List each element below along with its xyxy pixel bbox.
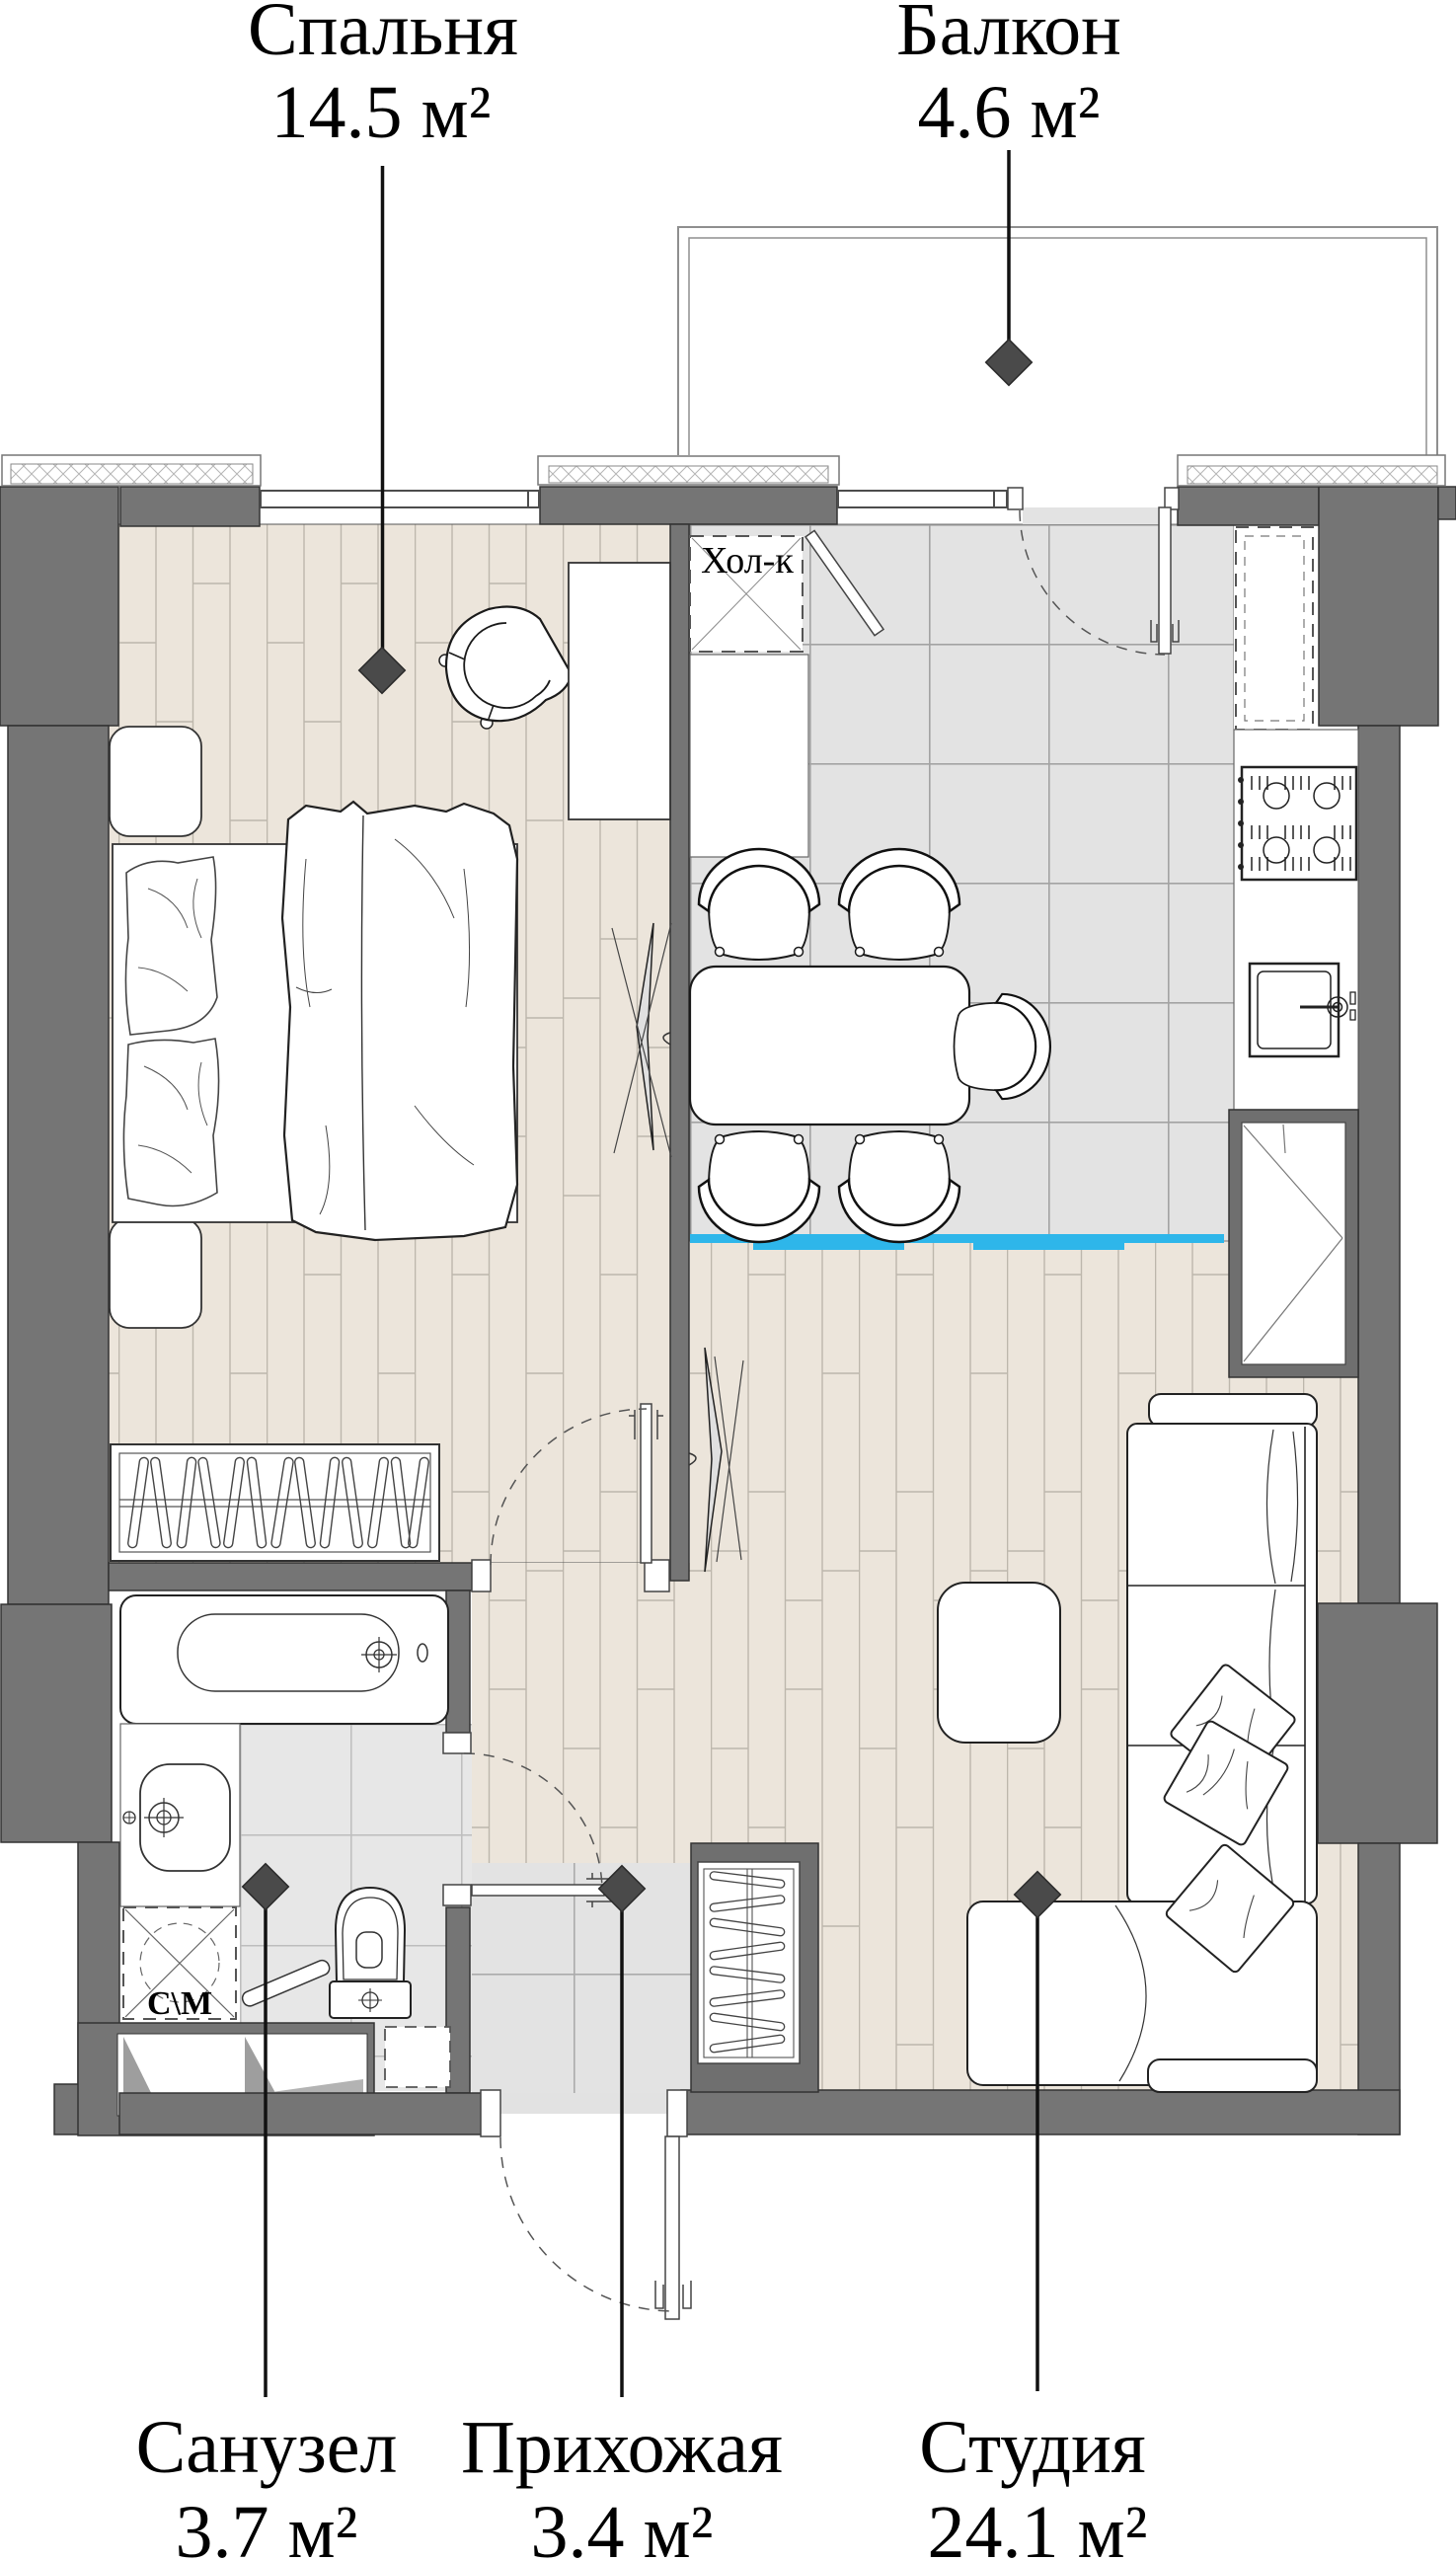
svg-text:Спальня: Спальня: [248, 0, 518, 71]
svg-text:Прихожая: Прихожая: [461, 2406, 783, 2489]
svg-text:Студия: Студия: [919, 2406, 1145, 2489]
svg-text:Санузел: Санузел: [136, 2406, 398, 2489]
svg-text:3.7 м²: 3.7 м²: [176, 2491, 358, 2561]
svg-text:4.6 м²: 4.6 м²: [918, 71, 1101, 154]
svg-text:С\М: С\М: [147, 1985, 212, 2022]
svg-text:Хол-к: Хол-к: [701, 540, 794, 582]
svg-text:24.1 м²: 24.1 м²: [928, 2491, 1148, 2561]
svg-text:3.4 м²: 3.4 м²: [531, 2491, 714, 2561]
svg-text:14.5 м²: 14.5 м²: [271, 71, 492, 154]
svg-text:Балкон: Балкон: [896, 0, 1121, 71]
